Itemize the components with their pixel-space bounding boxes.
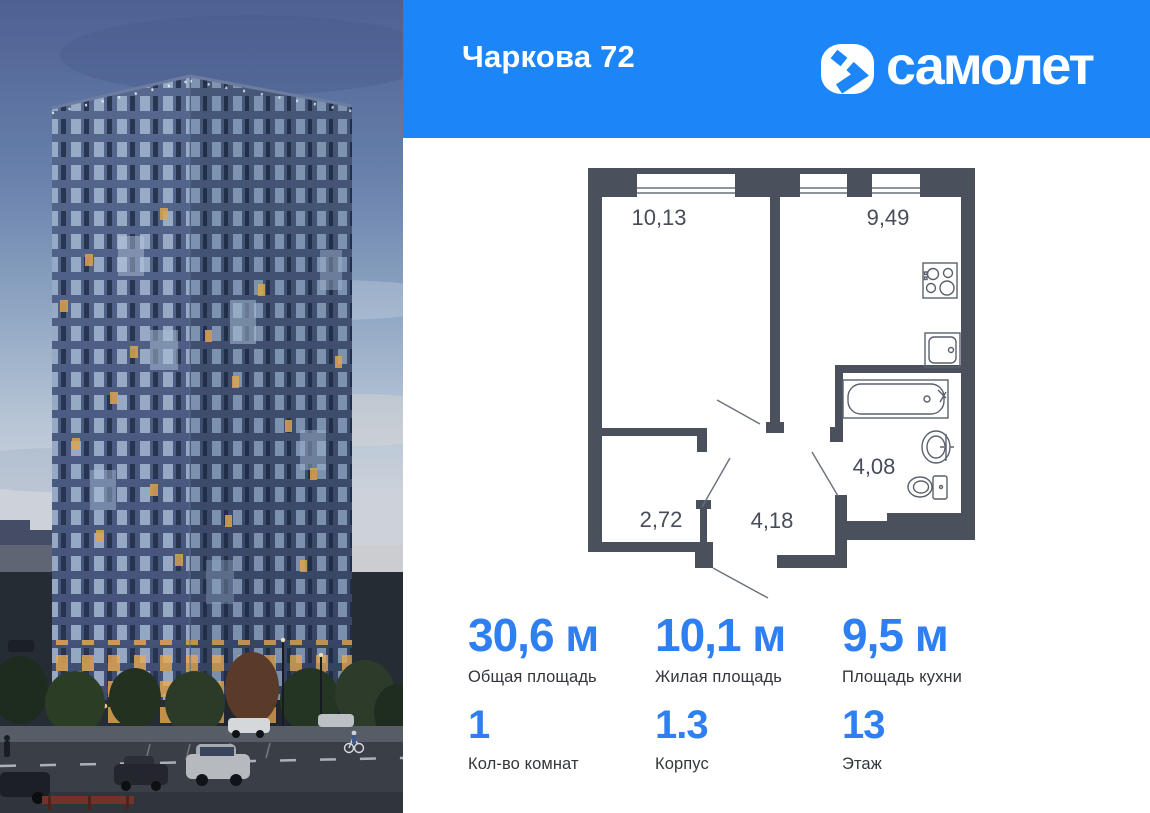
brand-name: самолет [886,39,1093,99]
stat-rooms-count: 1 Кол-во комнат [468,705,653,774]
room-label-bathroom: 4,08 [853,454,896,479]
stat-value: 30,6 м [468,612,653,658]
washbasin-icon [922,431,954,463]
room-label-hallway: 4,18 [751,508,794,533]
building-photo [0,0,403,813]
room-label-kitchen: 9,49 [867,205,910,230]
stat-building-number: 1.3 Корпус [655,705,840,774]
stat-label: Площадь кухни [842,668,1027,687]
stat-total-area: 30,6 м Общая площадь [468,612,653,687]
stat-value: 1.3 [655,705,840,745]
building-photo-art [0,0,403,813]
stat-kitchen-area: 9,5 м Площадь кухни [842,612,1027,687]
brand-logo: самолет [821,0,1093,138]
room-label-living: 10,13 [631,205,686,230]
stove-icon [923,263,957,298]
stat-living-area: 10,1 м Жилая площадь [655,612,840,687]
stat-floor-number: 13 Этаж [842,705,1027,774]
header: Чаркова 72 самолет [403,0,1150,138]
samolet-chevron-icon [821,44,874,94]
stat-label: Общая площадь [468,668,653,687]
listing-card: Чаркова 72 самолет [0,0,1150,813]
bathtub-icon [843,380,948,418]
stat-value: 10,1 м [655,612,840,658]
toilet-icon [908,476,947,499]
stat-label: Корпус [655,755,840,774]
stat-value: 13 [842,705,1027,745]
stat-value: 9,5 м [842,612,1027,658]
room-label-storage: 2,72 [640,507,683,532]
stat-label: Кол-во комнат [468,755,653,774]
stat-value: 1 [468,705,653,745]
stat-label: Этаж [842,755,1027,774]
page-title: Чаркова 72 [462,40,635,74]
kitchen-sink-icon [925,333,960,367]
stat-label: Жилая площадь [655,668,840,687]
